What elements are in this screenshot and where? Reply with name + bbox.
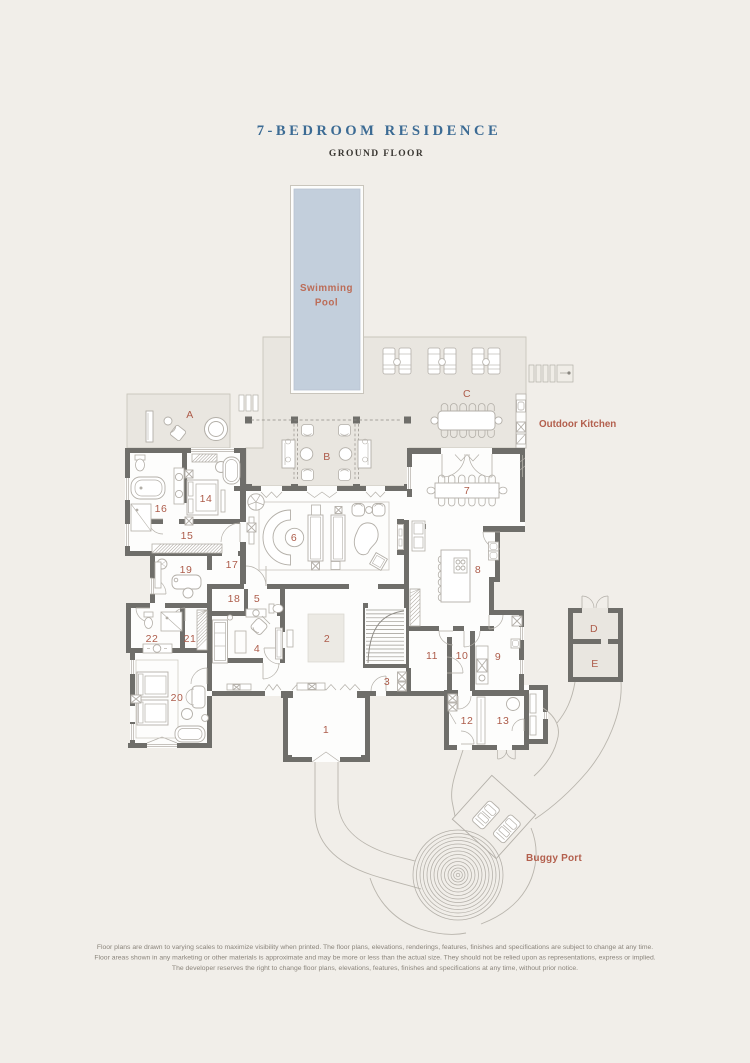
svg-text:16: 16 [155,503,168,515]
svg-text:2: 2 [324,633,330,645]
svg-text:19: 19 [180,564,193,576]
svg-text:E: E [591,658,599,670]
svg-text:20: 20 [171,692,184,704]
svg-text:D: D [590,623,598,635]
svg-text:14: 14 [200,493,213,505]
svg-text:Floor plans are drawn to varyi: Floor plans are drawn to varying scales … [97,944,653,951]
svg-text:A: A [186,409,194,421]
svg-text:7: 7 [464,485,470,497]
svg-text:15: 15 [181,530,194,542]
svg-text:Floor areas shown in any marke: Floor areas shown in any marketing or ot… [94,955,655,962]
svg-text:GROUND FLOOR: GROUND FLOOR [329,149,424,159]
svg-text:1: 1 [323,724,329,736]
svg-text:Swimming: Swimming [300,283,353,294]
svg-text:5: 5 [254,593,260,605]
svg-text:3: 3 [384,676,390,688]
svg-text:Outdoor Kitchen: Outdoor Kitchen [539,419,616,430]
svg-text:10: 10 [456,650,469,662]
svg-text:9: 9 [495,651,501,663]
svg-text:6: 6 [291,532,297,544]
svg-text:18: 18 [228,593,241,605]
svg-text:13: 13 [497,715,510,727]
svg-text:12: 12 [461,715,474,727]
svg-text:17: 17 [226,559,239,571]
svg-text:4: 4 [254,643,260,655]
svg-text:C: C [463,388,471,400]
svg-text:22: 22 [146,633,159,645]
svg-text:8: 8 [475,564,481,576]
svg-text:The developer reserves the rig: The developer reserves the right to chan… [172,965,578,972]
svg-text:Buggy Port: Buggy Port [526,853,582,864]
svg-text:7-BEDROOM RESIDENCE: 7-BEDROOM RESIDENCE [257,123,501,139]
svg-text:21: 21 [184,633,197,645]
svg-text:B: B [323,451,331,463]
svg-text:Pool: Pool [315,298,338,309]
svg-text:11: 11 [426,650,438,662]
